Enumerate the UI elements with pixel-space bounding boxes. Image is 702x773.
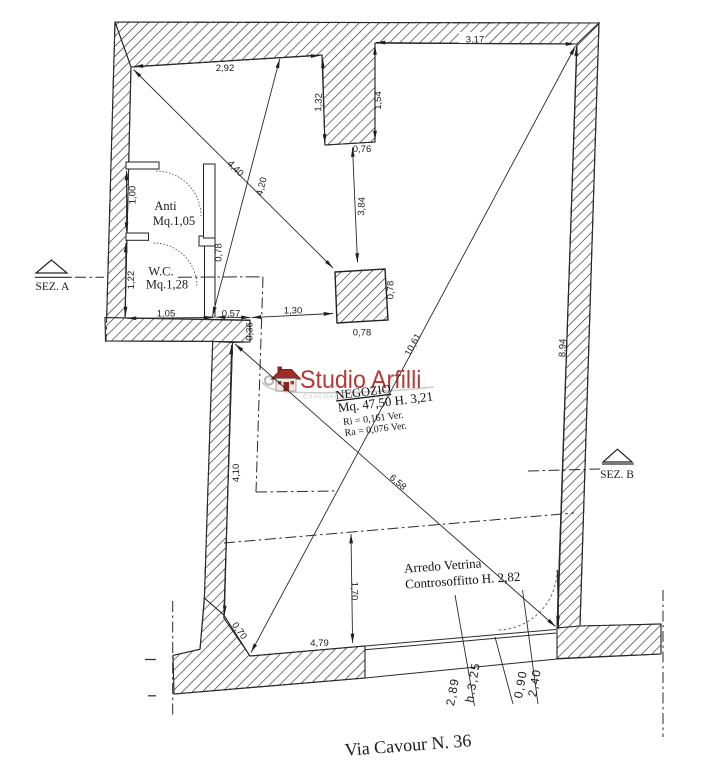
svg-text:1,30: 1,30 (284, 306, 303, 317)
svg-text:Mq.1,05: Mq.1,05 (153, 214, 195, 228)
svg-text:1,05: 1,05 (157, 309, 176, 320)
svg-text:0,78: 0,78 (353, 328, 372, 339)
svg-text:1,22: 1,22 (126, 271, 137, 290)
svg-text:1,54: 1,54 (373, 91, 384, 110)
svg-text:0,36: 0,36 (245, 322, 256, 341)
svg-text:4,79: 4,79 (310, 638, 329, 649)
svg-text:3,84: 3,84 (356, 197, 368, 216)
svg-text:8,94: 8,94 (557, 338, 569, 357)
svg-text:SEZ. B: SEZ. B (600, 469, 634, 481)
svg-text:Mq.1,28: Mq.1,28 (146, 278, 188, 292)
svg-text:0,78: 0,78 (385, 281, 396, 300)
svg-text:1,70: 1,70 (349, 582, 360, 601)
svg-text:Anti: Anti (154, 199, 177, 213)
svg-text:4,10: 4,10 (231, 464, 242, 483)
svg-text:0,57: 0,57 (222, 309, 241, 320)
svg-text:W.C.: W.C. (148, 265, 173, 279)
svg-text:2,92: 2,92 (216, 63, 235, 74)
svg-text:3,17: 3,17 (466, 35, 485, 46)
svg-text:0,76: 0,76 (353, 144, 372, 155)
svg-text:SEZ. A: SEZ. A (35, 281, 70, 293)
svg-text:1,00: 1,00 (128, 186, 139, 205)
svg-text:1,32: 1,32 (313, 93, 325, 112)
svg-text:0,78: 0,78 (213, 243, 224, 262)
